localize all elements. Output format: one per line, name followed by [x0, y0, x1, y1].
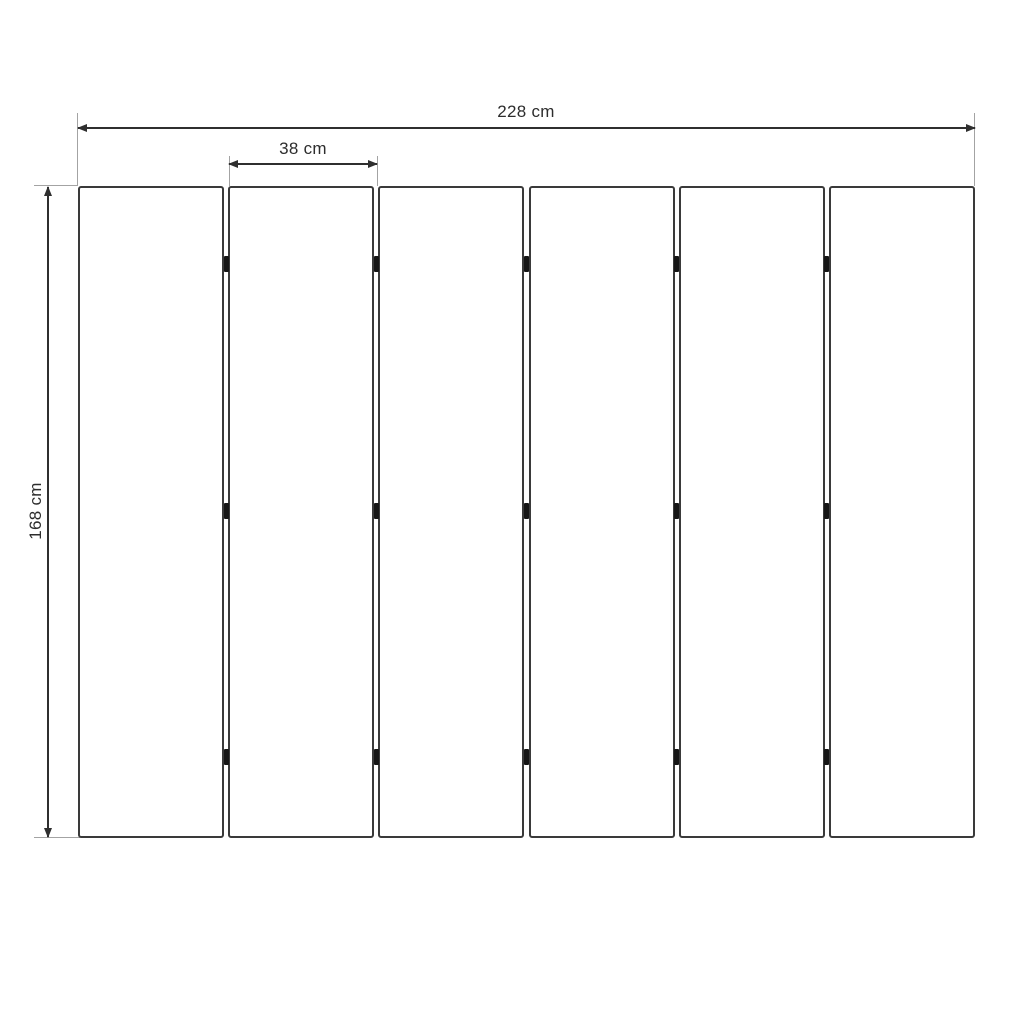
hinge [374, 256, 379, 272]
dimension-line-height [47, 187, 49, 837]
arrowhead-right-icon [368, 160, 378, 168]
panel-2 [228, 186, 374, 838]
hinge [224, 256, 229, 272]
panel-width-label: 38 cm [279, 139, 327, 159]
panel-6 [829, 186, 975, 838]
dimension-diagram: 228 cm 38 cm 168 cm [0, 0, 1024, 1024]
arrowhead-up-icon [44, 186, 52, 196]
hinge [674, 503, 679, 519]
extension-line-bottom [34, 837, 80, 838]
hinge [674, 256, 679, 272]
dimension-line-panel-width [229, 163, 377, 165]
hinge [224, 503, 229, 519]
arrowhead-right-icon [966, 124, 976, 132]
hinge [374, 503, 379, 519]
arrowhead-down-icon [44, 828, 52, 838]
hinge [674, 749, 679, 765]
height-label: 168 cm [26, 482, 46, 540]
hinge [224, 749, 229, 765]
panel-3 [378, 186, 524, 838]
arrowhead-left-icon [228, 160, 238, 168]
extension-line-top [34, 185, 78, 186]
panel-1 [78, 186, 224, 838]
hinge [524, 749, 529, 765]
panel-5 [679, 186, 825, 838]
hinge [824, 503, 829, 519]
hinge [524, 256, 529, 272]
total-width-label: 228 cm [497, 102, 555, 122]
hinge [524, 503, 529, 519]
dimension-line-total-width [78, 127, 975, 129]
hinge [824, 749, 829, 765]
hinge [374, 749, 379, 765]
hinge [824, 256, 829, 272]
arrowhead-left-icon [77, 124, 87, 132]
panel-4 [529, 186, 675, 838]
